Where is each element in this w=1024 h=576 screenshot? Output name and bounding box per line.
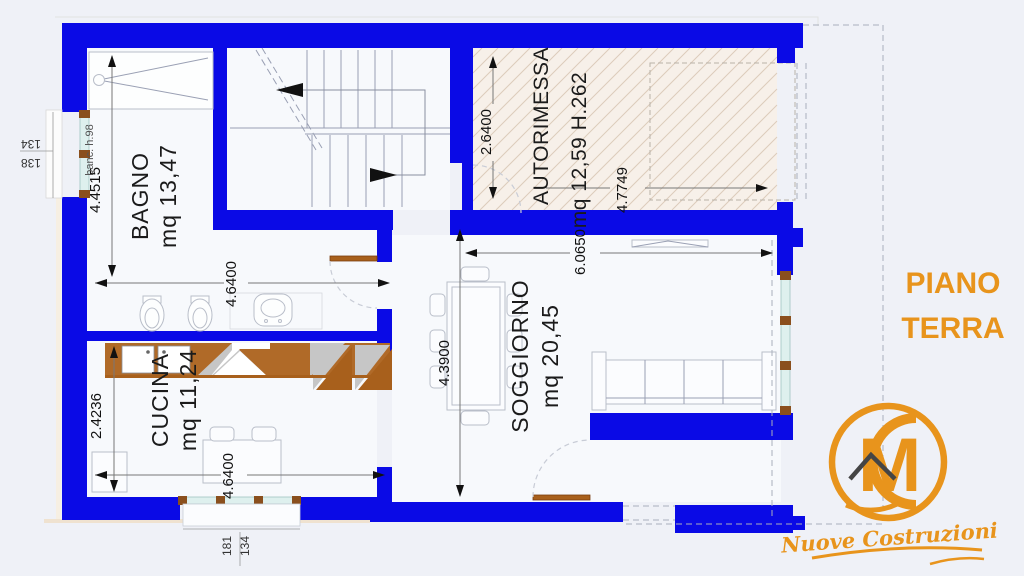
left-window-note: banc. h.98: [84, 124, 96, 175]
left-window-dim1: 134: [21, 137, 41, 151]
company-logo: M Nuove Costruzioni: [779, 406, 998, 564]
toilet: [140, 296, 164, 331]
room-area-autorimessa: mq 12,59 H.262: [568, 72, 591, 228]
sofa: [592, 352, 776, 410]
room-label-cucina: CUCINA: [147, 353, 173, 447]
bottom-window-dim1: 181: [220, 536, 234, 556]
bottom-window-dim2: 134: [238, 536, 252, 556]
dim-autorimessa-width: 4.7749: [614, 167, 631, 213]
hall-door-leaf: [330, 256, 377, 261]
room-area-cucina: mq 11,24: [175, 349, 201, 451]
east-window: [780, 271, 791, 415]
left-window: [20, 110, 90, 198]
room-label-autorimessa: AUTORIMESSA: [530, 47, 553, 205]
dim-cucina-height: 2.4236: [88, 393, 105, 439]
logo-script-text: Nuove Costruzioni: [779, 517, 998, 557]
room-area-soggiorno: mq 20,45: [537, 304, 563, 408]
room-area-bagno: mq 13,47: [155, 144, 181, 248]
dim-bagno-width: 4.6400: [223, 261, 240, 307]
garage-hatch: [473, 48, 795, 210]
page-title-line2: TERRA: [901, 312, 1004, 345]
dim-cucina-width: 4.6400: [220, 453, 237, 499]
bidet: [188, 296, 212, 331]
tv-unit: [632, 240, 708, 247]
room-label-soggiorno: SOGGIORNO: [507, 279, 533, 432]
dim-soggiorno-height: 4.3900: [436, 340, 453, 386]
page-title-line1: PIANO: [905, 267, 1000, 300]
logo-monogram: M: [858, 423, 921, 508]
entrance-door-leaf: [533, 495, 590, 500]
left-window-dim2: 138: [21, 156, 41, 170]
floor-plan-drawing: BAGNO mq 13,47 CUCINA mq 11,24 SOGGIORNO…: [0, 0, 1024, 576]
branding: PIANO TERRA M Nuove Costruzioni: [779, 267, 1004, 564]
dim-autorimessa-height: 2.6400: [478, 109, 495, 155]
room-label-bagno: BAGNO: [127, 152, 153, 240]
dim-soggiorno-width: 6.0650: [572, 229, 589, 275]
floor-plan-sheet: BAGNO mq 13,47 CUCINA mq 11,24 SOGGIORNO…: [0, 0, 1024, 576]
